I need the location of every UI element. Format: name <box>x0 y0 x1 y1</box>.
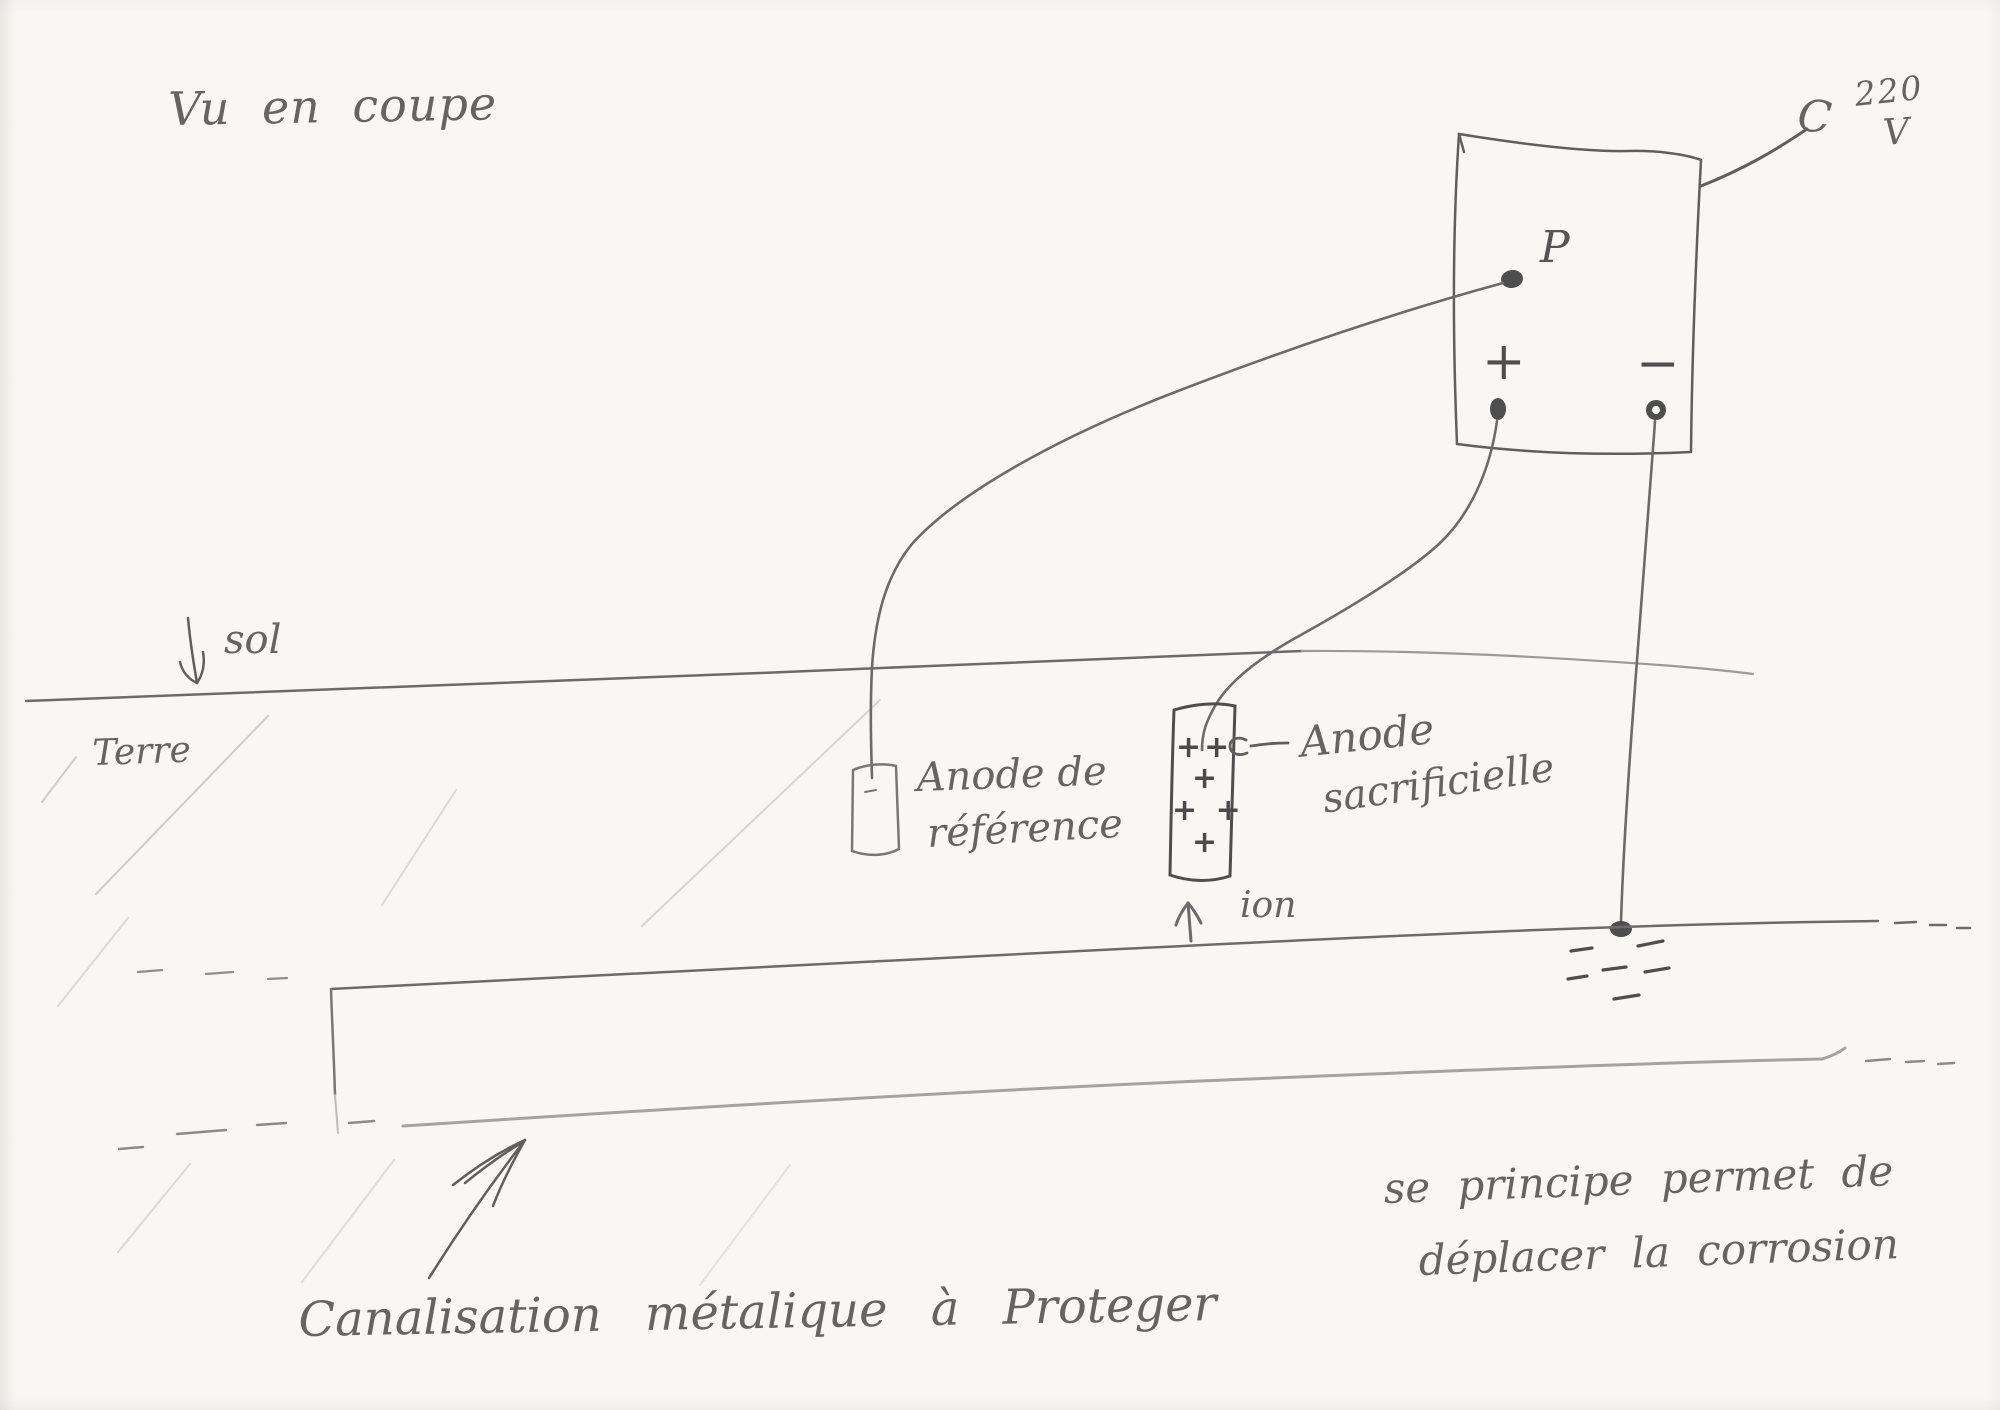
terminal-plus-dot <box>1490 398 1506 420</box>
pipeline-top-line <box>331 921 1970 989</box>
terminal-p-dot <box>1500 269 1524 290</box>
anode-charge-row-1: ++ <box>1176 733 1232 763</box>
wire-negative-attachment-dot <box>1610 921 1632 937</box>
ground-surface-label: sol <box>224 620 281 660</box>
terminal-plus-label: + <box>1482 336 1526 388</box>
supply-label-c: C <box>1795 94 1833 141</box>
ground-line <box>26 651 1753 701</box>
wire-sacrificial-anode <box>1202 421 1497 750</box>
corrosion-marks <box>1568 941 1669 999</box>
ion-arrow-icon <box>1176 903 1201 941</box>
terminal-minus-dot <box>1649 403 1663 417</box>
page-title: Vu en coupe <box>168 80 498 132</box>
wire-negative <box>1621 421 1655 921</box>
reference-anode-label-line1: Anode de <box>916 751 1107 798</box>
sketch-page: Vu en coupe C 220 V P + − sol Terre Anod… <box>0 0 2000 1410</box>
anode-charge-row-3: + + <box>1172 796 1241 826</box>
sol-arrow-icon <box>180 618 204 683</box>
pipeline-bottom-line <box>403 1048 1845 1126</box>
anode-charge-row-2: + <box>1192 764 1217 794</box>
reference-anode-label-line2: référence <box>926 804 1124 854</box>
reference-anode-shape <box>852 764 899 855</box>
terminal-minus-label: − <box>1636 338 1680 390</box>
soil-hatching <box>42 700 880 1285</box>
anode-charge-row-4: + <box>1192 828 1217 858</box>
pipeline-left-edge <box>331 989 338 1133</box>
supply-unit: V <box>1882 114 1910 152</box>
supply-lead-line <box>1701 129 1807 186</box>
earth-label: Terre <box>92 733 191 772</box>
supply-voltage: 220 <box>1853 71 1925 111</box>
pipeline-pointer-arrow <box>429 1140 525 1278</box>
pipeline-bottom-dashes <box>119 1059 1954 1149</box>
terminal-p-label: P <box>1540 226 1570 270</box>
ion-label: ion <box>1240 888 1296 924</box>
wire-reference-anode <box>871 283 1503 778</box>
left-arrow-icon <box>1230 738 1288 754</box>
pipeline-top-left-dashes <box>138 970 287 979</box>
